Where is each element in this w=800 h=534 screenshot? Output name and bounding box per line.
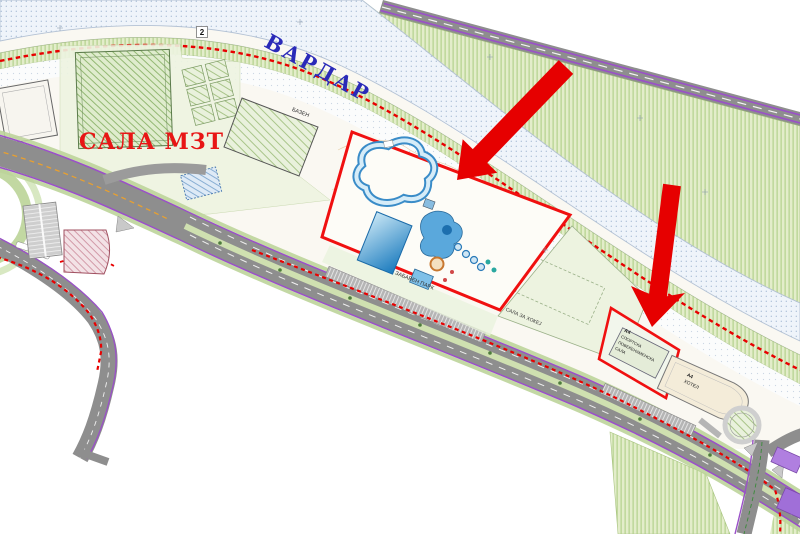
map-canvas: А4 СПОРТСКА ПОВЕЌЕНАМЕНСКА САЛА А4 ХОТЕЛ [0, 0, 800, 534]
hotel-garden-circle [725, 408, 759, 442]
site-plan-screenshot: А4 СПОРТСКА ПОВЕЌЕНАМЕНСКА САЛА А4 ХОТЕЛ [0, 0, 800, 534]
parking-lot [23, 202, 62, 259]
mzt-hall-label: САЛА МЗТ [79, 129, 224, 155]
road-number-badge: 2 [197, 27, 208, 38]
pink-building [64, 230, 110, 274]
road-number-label: 2 [200, 28, 205, 37]
slide-funnel [442, 225, 452, 235]
lazy-river-bridge [384, 140, 394, 147]
spa-circle [431, 258, 444, 271]
